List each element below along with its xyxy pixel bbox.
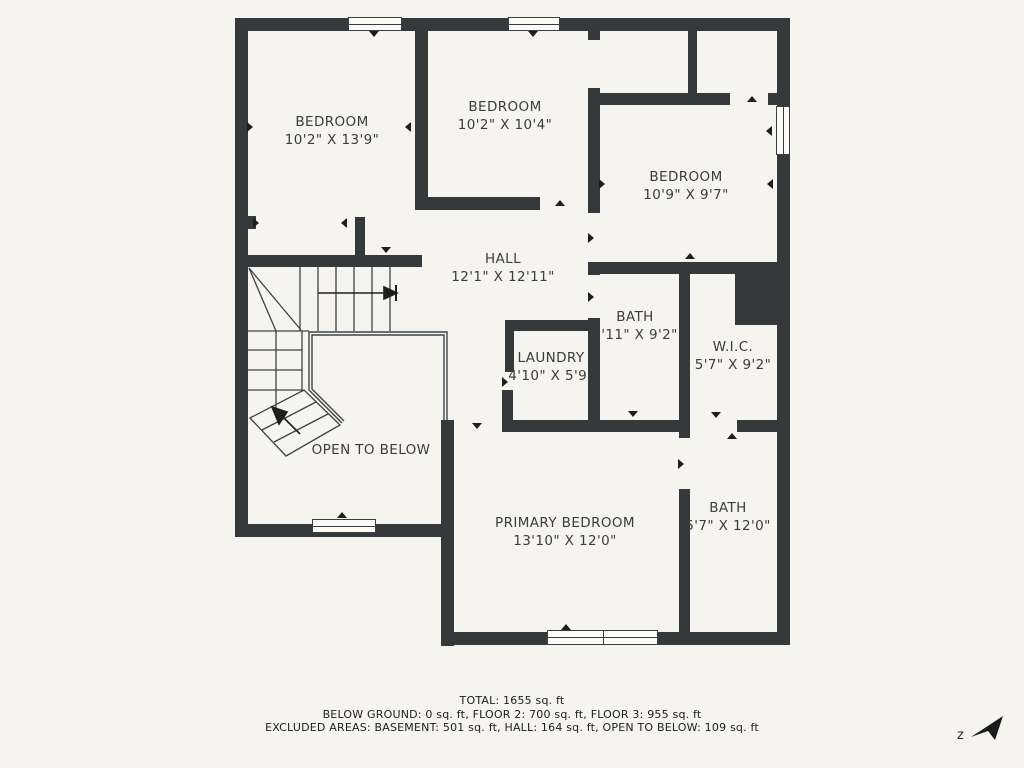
room-dimensions: 4'11" X 9'2" (592, 326, 677, 344)
opening-marker (767, 179, 773, 189)
room-name: HALL (451, 250, 554, 268)
window-mullion (604, 637, 657, 638)
opening-marker (555, 200, 565, 206)
room-label-bath-upper: BATH4'11" X 9'2" (592, 308, 677, 344)
wall (735, 270, 783, 325)
opening-marker (678, 459, 684, 469)
room-name: BEDROOM (458, 98, 552, 116)
wall (238, 255, 422, 267)
wall (768, 93, 783, 105)
room-dimensions: 10'2" X 13'9" (285, 131, 379, 149)
wall (588, 25, 600, 40)
room-name: W.I.C. (695, 338, 771, 356)
window-mullion (509, 24, 559, 25)
opening-marker (685, 253, 695, 259)
room-dimensions: 5'7" X 12'0" (685, 517, 770, 535)
wall (597, 93, 730, 105)
room-label-hall: HALL12'1" X 12'11" (451, 250, 554, 286)
room-label-bedroom-3: BEDROOM10'9" X 9'7" (643, 168, 728, 204)
room-label-bedroom-2: BEDROOM10'2" X 10'4" (458, 98, 552, 134)
opening-marker (381, 247, 391, 253)
opening-marker (341, 218, 347, 228)
room-name: LAUNDRY (508, 349, 593, 367)
window (776, 106, 790, 155)
opening-marker (253, 218, 259, 228)
wall (679, 262, 690, 438)
room-name: BATH (685, 499, 770, 517)
wall (355, 217, 365, 262)
room-label-bath-primary: BATH5'7" X 12'0" (685, 499, 770, 535)
wall (503, 420, 690, 432)
opening-marker (588, 292, 594, 302)
window (508, 17, 560, 31)
opening-marker (727, 433, 737, 439)
room-dimensions: 10'9" X 9'7" (643, 186, 728, 204)
wall (688, 31, 697, 97)
window (348, 17, 402, 31)
room-dimensions: 4'10" X 5'9" (508, 367, 593, 385)
room-label-open-to-below: OPEN TO BELOW (312, 441, 431, 459)
floorplan: BEDROOM10'2" X 13'9"BEDROOM10'2" X 10'4"… (0, 0, 1024, 768)
wall (415, 197, 540, 210)
room-dimensions: 10'2" X 10'4" (458, 116, 552, 134)
floor-areas-line: BELOW GROUND: 0 sq. ft, FLOOR 2: 700 sq.… (0, 708, 1024, 722)
window-mullion (349, 24, 401, 25)
area-summary: TOTAL: 1655 sq. ft BELOW GROUND: 0 sq. f… (0, 694, 1024, 735)
compass-letter: z (957, 728, 964, 743)
wall (505, 320, 600, 331)
room-name: OPEN TO BELOW (312, 441, 431, 459)
opening-marker (766, 126, 772, 136)
opening-marker (405, 122, 411, 132)
room-label-laundry: LAUNDRY4'10" X 5'9" (508, 349, 593, 385)
total-area-line: TOTAL: 1655 sq. ft (0, 694, 1024, 708)
wall (588, 88, 600, 213)
window (603, 630, 658, 645)
window-mullion (548, 637, 603, 638)
opening-marker (369, 31, 379, 37)
opening-marker (588, 233, 594, 243)
room-label-primary-bedroom: PRIMARY BEDROOM13'10" X 12'0" (495, 514, 635, 550)
opening-marker (711, 412, 721, 418)
opening-marker (502, 377, 508, 387)
window-mullion (783, 107, 784, 154)
room-label-wic: W.I.C.5'7" X 9'2" (695, 338, 771, 374)
opening-marker (528, 31, 538, 37)
opening-marker (472, 423, 482, 429)
room-label-bedroom-1: BEDROOM10'2" X 13'9" (285, 113, 379, 149)
opening-marker (561, 624, 571, 630)
window-mullion (313, 526, 375, 527)
opening-marker (247, 122, 253, 132)
wall (737, 420, 783, 432)
window (547, 630, 604, 645)
excluded-areas-line: EXCLUDED AREAS: BASEMENT: 501 sq. ft, HA… (0, 721, 1024, 735)
room-name: PRIMARY BEDROOM (495, 514, 635, 532)
room-dimensions: 12'1" X 12'11" (451, 268, 554, 286)
room-dimensions: 5'7" X 9'2" (695, 356, 771, 374)
wall (441, 420, 454, 646)
wall (415, 18, 428, 210)
opening-marker (599, 179, 605, 189)
room-name: BATH (592, 308, 677, 326)
room-name: BEDROOM (643, 168, 728, 186)
room-dimensions: 13'10" X 12'0" (495, 532, 635, 550)
window (312, 519, 376, 533)
room-name: BEDROOM (285, 113, 379, 131)
opening-marker (628, 411, 638, 417)
opening-marker (337, 512, 347, 518)
north-arrow-icon: z (935, 698, 1020, 758)
wall (235, 18, 248, 537)
opening-marker (747, 96, 757, 102)
floorplan-page: { "floorplan": { "colors": { "background… (0, 0, 1024, 768)
